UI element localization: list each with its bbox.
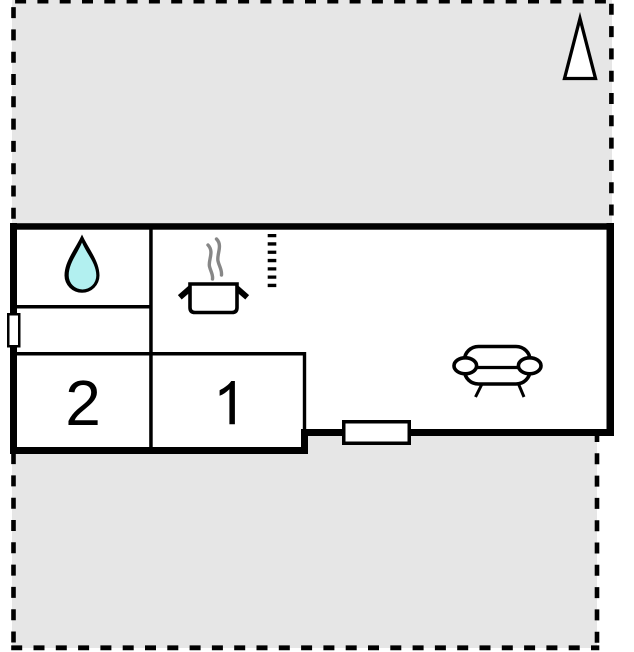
svg-text:2: 2 [65,367,101,439]
